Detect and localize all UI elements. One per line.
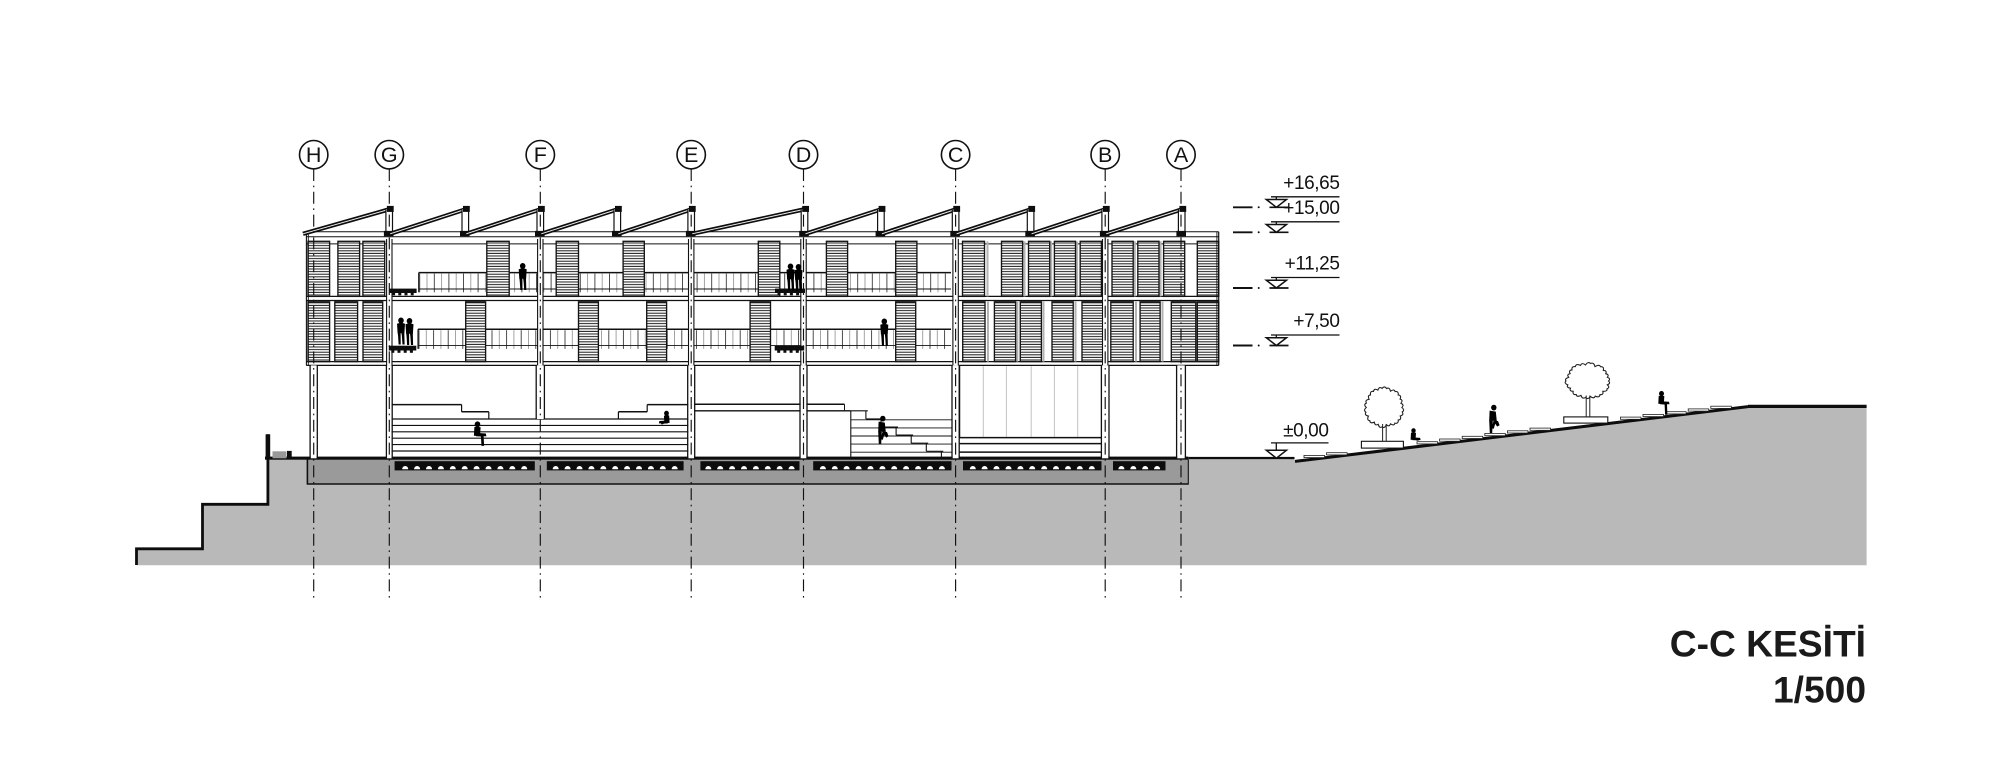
- svg-text:+7,50: +7,50: [1293, 311, 1339, 332]
- svg-text:±0,00: ±0,00: [1283, 420, 1328, 441]
- svg-text:D: D: [796, 143, 812, 167]
- svg-text:C-C KESİTİ: C-C KESİTİ: [1670, 623, 1866, 665]
- svg-text:C: C: [948, 143, 964, 167]
- svg-text:G: G: [381, 143, 398, 167]
- svg-text:+16,65: +16,65: [1283, 173, 1339, 194]
- svg-text:+15,00: +15,00: [1283, 198, 1339, 219]
- svg-text:A: A: [1174, 143, 1189, 167]
- svg-text:F: F: [534, 143, 547, 167]
- svg-text:+11,25: +11,25: [1285, 254, 1340, 275]
- svg-text:1/500: 1/500: [1773, 669, 1866, 711]
- svg-text:B: B: [1098, 143, 1112, 167]
- svg-text:E: E: [684, 143, 698, 167]
- svg-text:H: H: [306, 143, 322, 167]
